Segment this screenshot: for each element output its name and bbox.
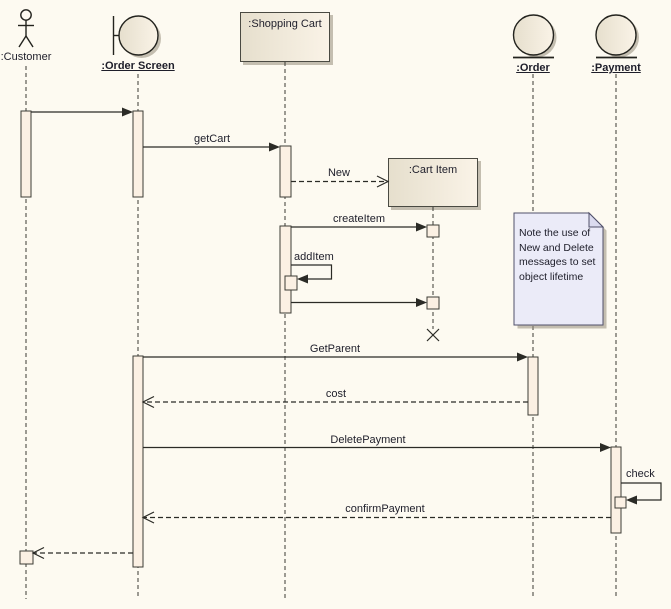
- message-label-create-item: createItem: [333, 213, 385, 226]
- participant-label-order-screen: :Order Screen: [101, 60, 174, 73]
- arrowhead: [517, 353, 528, 362]
- message-label-delete-payment: DeletePayment: [330, 434, 405, 447]
- activation-order[interactable]: [528, 357, 538, 415]
- activation-order-screen-1[interactable]: [133, 111, 143, 197]
- participant-label-order: :Order: [516, 62, 550, 75]
- boundary-circle: [119, 16, 158, 55]
- lifeline-termination-x[interactable]: [427, 329, 439, 341]
- boundary-icon[interactable]: [114, 16, 162, 58]
- entity-payment-icon[interactable]: [596, 15, 639, 58]
- activation-payment-nested[interactable]: [615, 497, 626, 508]
- note-text: Note the use of New and Delete messages …: [519, 226, 599, 284]
- actor-icon[interactable]: [18, 10, 34, 47]
- activation-cart-item-2[interactable]: [427, 297, 439, 309]
- activation-payment[interactable]: [611, 447, 621, 533]
- arrowhead: [416, 298, 427, 307]
- entity-payment-circle: [596, 15, 636, 55]
- message-label-cost: cost: [326, 388, 346, 401]
- activation-shopping-cart-1[interactable]: [280, 146, 291, 197]
- message-call-order-screen[interactable]: [31, 108, 133, 117]
- message-label-new: New: [328, 167, 350, 180]
- message-delete[interactable]: [291, 298, 427, 307]
- message-label-confirm-payment: confirmPayment: [345, 503, 424, 516]
- activation-customer[interactable]: [21, 111, 31, 197]
- activation-cart-item-1[interactable]: [427, 225, 439, 237]
- message-check[interactable]: [621, 483, 661, 505]
- message-label-get-cart: getCart: [194, 133, 230, 146]
- actor-leg-right: [26, 36, 33, 47]
- arrowhead: [626, 496, 637, 505]
- message-label-add-item: addItem: [294, 251, 334, 264]
- activation-shopping-cart-nested[interactable]: [285, 276, 297, 290]
- arrowhead: [269, 143, 280, 152]
- sequence-diagram: :Shopping Cart :Cart Item: [0, 0, 671, 609]
- activation-order-screen-2[interactable]: [133, 356, 143, 567]
- diagram-graphics: [0, 0, 671, 609]
- message-check-path: [621, 483, 661, 500]
- participant-label-payment: :Payment: [591, 62, 641, 75]
- message-label-check: check: [626, 468, 655, 481]
- activation-shopping-cart-2[interactable]: [280, 226, 291, 313]
- arrowhead: [122, 108, 133, 117]
- entity-order-circle: [514, 15, 554, 55]
- arrowhead: [297, 275, 308, 284]
- arrowhead: [600, 443, 611, 452]
- actor-leg-left: [19, 36, 26, 47]
- entity-order-icon[interactable]: [513, 15, 557, 58]
- actor-head: [21, 10, 31, 20]
- note-fold-icon: [589, 213, 603, 227]
- participant-label-customer: :Customer: [1, 51, 52, 64]
- activation-customer-end[interactable]: [20, 551, 33, 564]
- message-return-to-customer[interactable]: [33, 548, 133, 559]
- arrowhead: [416, 223, 427, 232]
- message-label-get-parent: GetParent: [310, 343, 360, 356]
